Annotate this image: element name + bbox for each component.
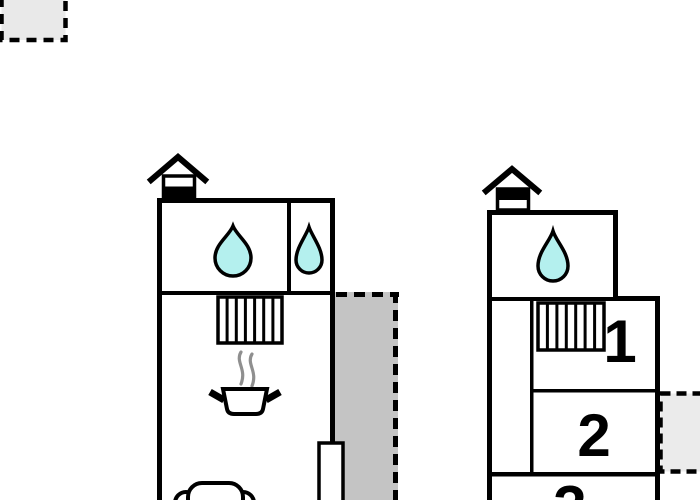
terrace-top-left: [2, 0, 66, 40]
wall-right-upper: [613, 210, 618, 301]
water-drop-icon: [296, 227, 322, 273]
house-body-filled-half: [499, 191, 527, 201]
water-drop-icon: [215, 226, 251, 276]
upper-floor-unit: 1 2 3: [486, 169, 700, 500]
wall-divider-horizontal: [159, 291, 333, 295]
wall-corridor-divider: [530, 299, 534, 475]
ground-floor-level-icon: [151, 157, 205, 197]
floorplan-image: 1 2 3: [0, 0, 700, 500]
wall-divider-bathrooms: [287, 198, 291, 293]
room-label-3: 3: [553, 474, 586, 500]
wall-room1-room2-divider: [532, 389, 655, 393]
house-body-filled-half: [165, 187, 193, 196]
floor-plan-canvas: 1 2 3: [0, 0, 700, 500]
wall-left: [487, 210, 492, 500]
radiator-icon: [218, 297, 282, 343]
cooking-pot-icon: [210, 389, 280, 414]
pot-body: [223, 389, 267, 414]
wall-extension-top: [613, 296, 660, 301]
water-drop-icon: [538, 231, 568, 281]
wall-top: [157, 198, 335, 203]
car-body: [188, 483, 243, 500]
terrace-right: [661, 394, 700, 472]
wall-left: [157, 198, 162, 500]
wall-right-lower: [655, 296, 660, 500]
wall-top: [487, 210, 618, 215]
wall-bathroom-divider: [490, 297, 615, 301]
steam-icon: [239, 352, 253, 386]
ground-floor-unit: [151, 157, 399, 500]
wall-right: [330, 198, 335, 446]
radiator-icon: [538, 303, 604, 350]
car-icon: [175, 483, 254, 500]
upper-floor-level-icon: [486, 169, 538, 210]
room-label-1: 1: [603, 308, 636, 375]
room-label-2: 2: [577, 402, 610, 469]
door-icon: [319, 443, 343, 500]
